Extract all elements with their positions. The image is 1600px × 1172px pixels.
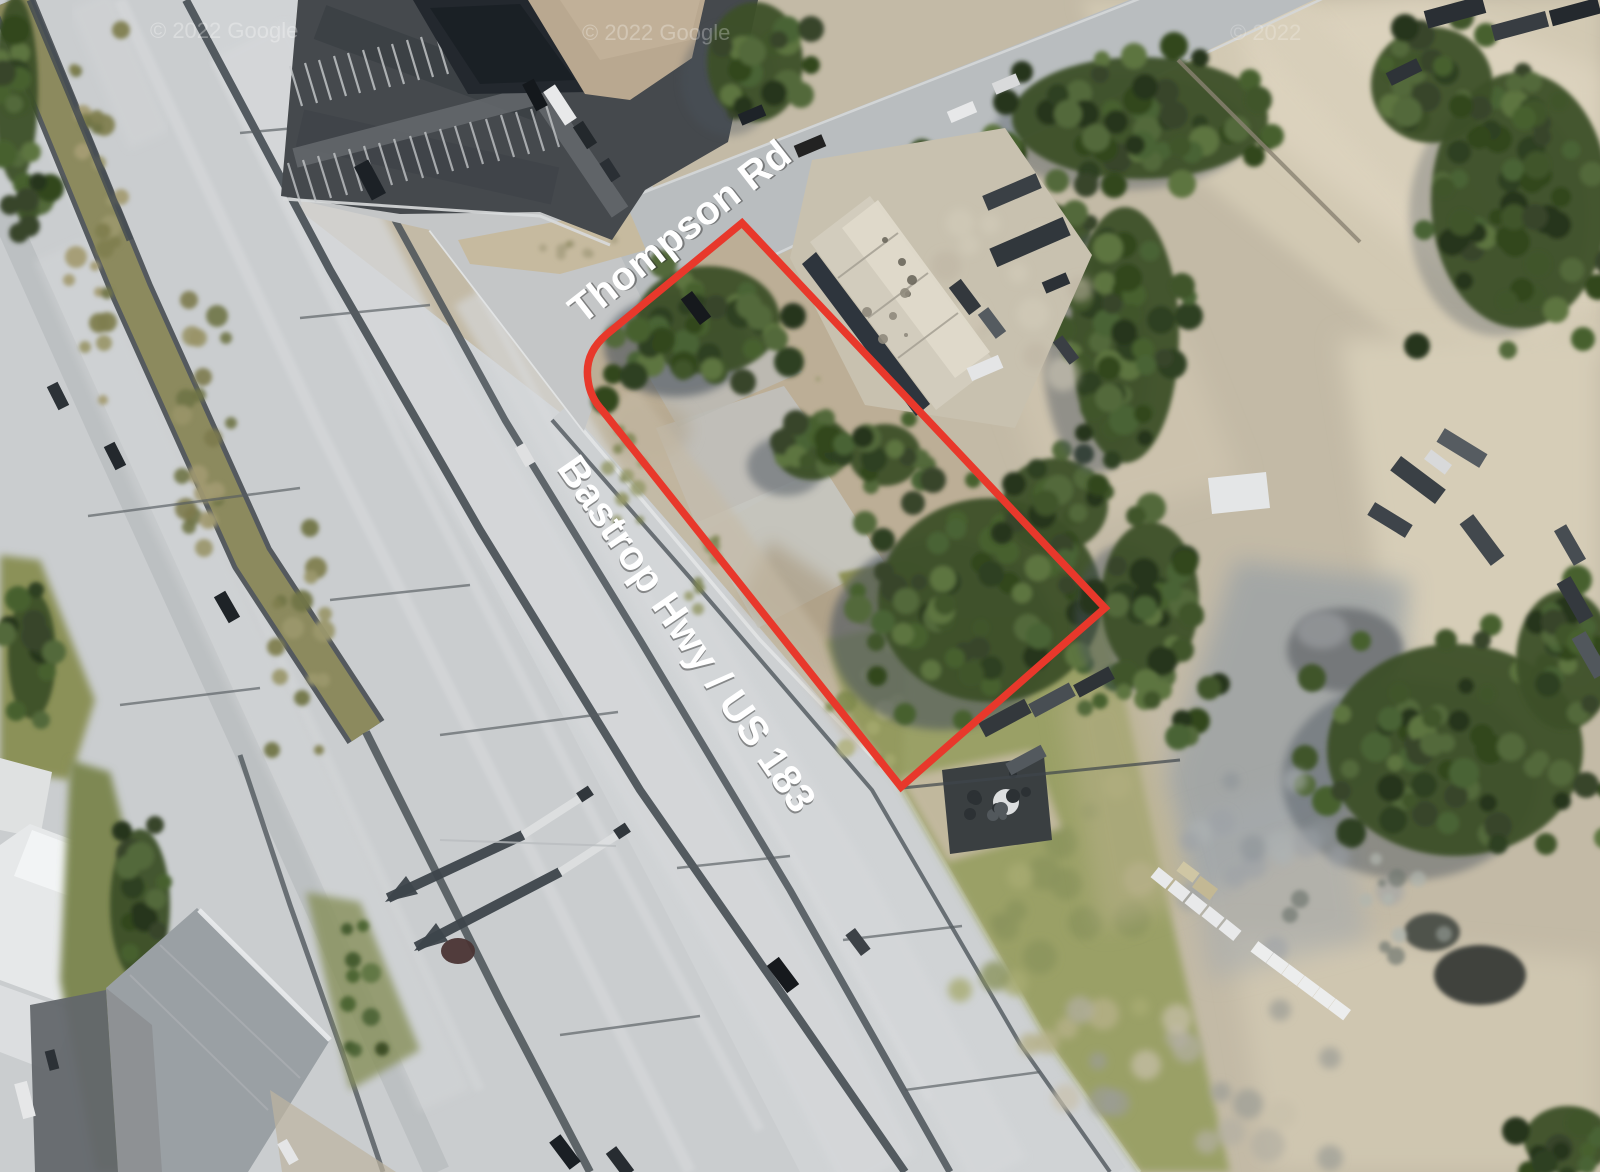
svg-text:© 2022 Google: © 2022 Google <box>582 20 730 45</box>
svg-text:© 2022: © 2022 <box>1230 20 1301 45</box>
svg-text:© 2022 Google: © 2022 Google <box>150 18 298 43</box>
